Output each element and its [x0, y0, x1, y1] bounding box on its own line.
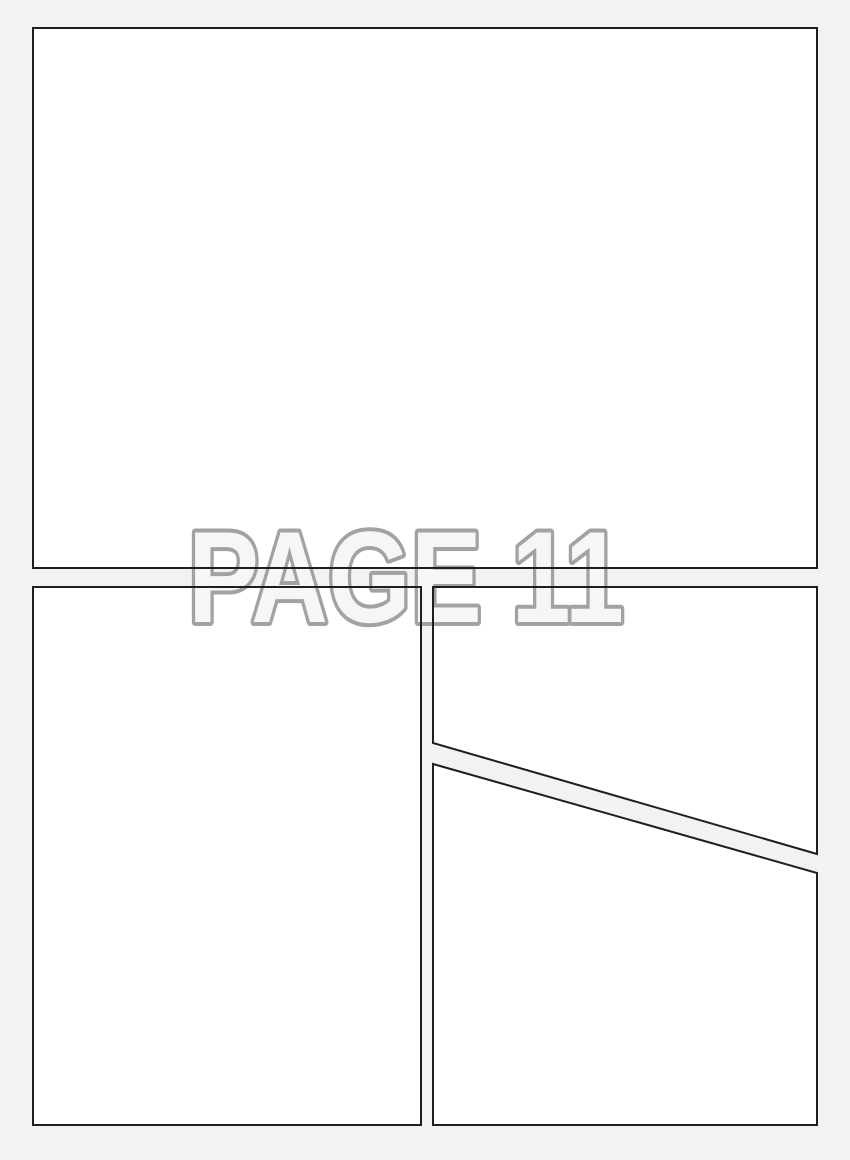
panel-bottom-left [33, 587, 421, 1125]
page-canvas: PAGE 11 [0, 0, 850, 1160]
comic-page-template: PAGE 11 [0, 0, 850, 1160]
panel-top [33, 28, 817, 568]
page-number-watermark: PAGE 11 [188, 504, 624, 650]
